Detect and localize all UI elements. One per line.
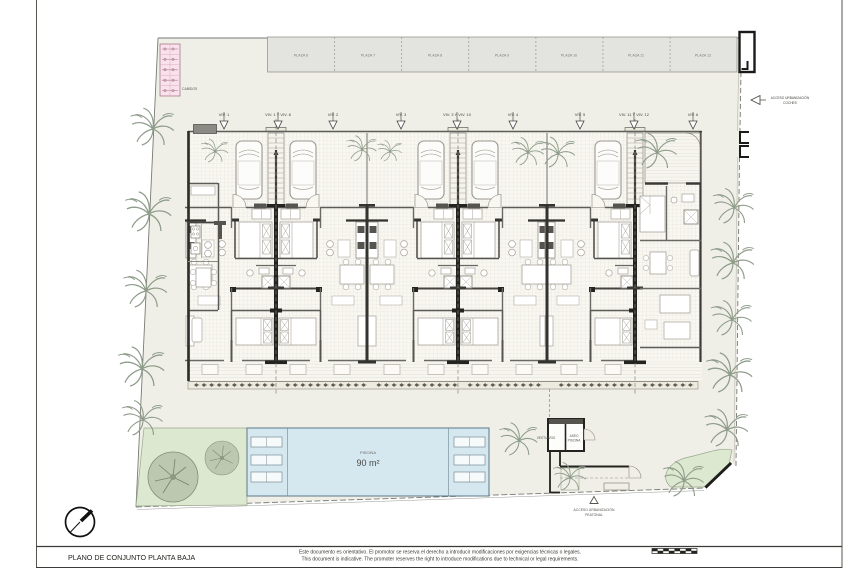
svg-text:CABIDOS: CABIDOS <box>182 87 198 91</box>
svg-text:PLAZA 12: PLAZA 12 <box>695 54 711 58</box>
svg-text:VIV. 3: VIV. 3 <box>396 112 407 117</box>
svg-text:COCHES: COCHES <box>783 101 797 105</box>
svg-text:PISCINA: PISCINA <box>360 450 376 455</box>
svg-text:VIV. 1: VIV. 1 <box>219 112 230 117</box>
svg-text:VIV. 5: VIV. 5 <box>575 112 586 117</box>
svg-text:90 m²: 90 m² <box>356 458 379 468</box>
svg-text:VIV. 3 Y VIV. 10: VIV. 3 Y VIV. 10 <box>443 112 472 117</box>
svg-text:PLAZA 10: PLAZA 10 <box>561 54 577 58</box>
svg-text:ACCESO URBANIZACIÓN: ACCESO URBANIZACIÓN <box>771 95 810 100</box>
svg-text:PEATONAL: PEATONAL <box>585 513 603 517</box>
svg-text:ASEO: ASEO <box>570 434 579 438</box>
svg-text:PLAZA 11: PLAZA 11 <box>628 54 644 58</box>
svg-text:VESTUARIO: VESTUARIO <box>537 436 556 440</box>
svg-text:PLAZA 8: PLAZA 8 <box>428 54 442 58</box>
svg-text:PLAZA 6: PLAZA 6 <box>294 54 308 58</box>
svg-text:VIV. 1 Y VIV. 8: VIV. 1 Y VIV. 8 <box>265 112 292 117</box>
svg-text:PISCINA: PISCINA <box>568 439 582 443</box>
svg-text:VIV. 2: VIV. 2 <box>328 112 339 117</box>
svg-text:PLAZA 7: PLAZA 7 <box>361 54 375 58</box>
svg-text:This document is indicative. T: This document is indicative. The promote… <box>302 557 579 563</box>
svg-text:PLANO DE CONJUNTO PLANTA BAJA: PLANO DE CONJUNTO PLANTA BAJA <box>68 553 195 562</box>
svg-text:Este documento es orientativo.: Este documento es orientativo. El promot… <box>299 550 581 556</box>
svg-text:VIV. 6: VIV. 6 <box>688 112 699 117</box>
svg-text:PLAZA 9: PLAZA 9 <box>495 54 509 58</box>
svg-text:VIV. 11 Y VIV. 12: VIV. 11 Y VIV. 12 <box>619 112 650 117</box>
svg-text:VIV. 4: VIV. 4 <box>508 112 519 117</box>
svg-text:ACCESO URBANIZACIÓN: ACCESO URBANIZACIÓN <box>574 507 615 512</box>
